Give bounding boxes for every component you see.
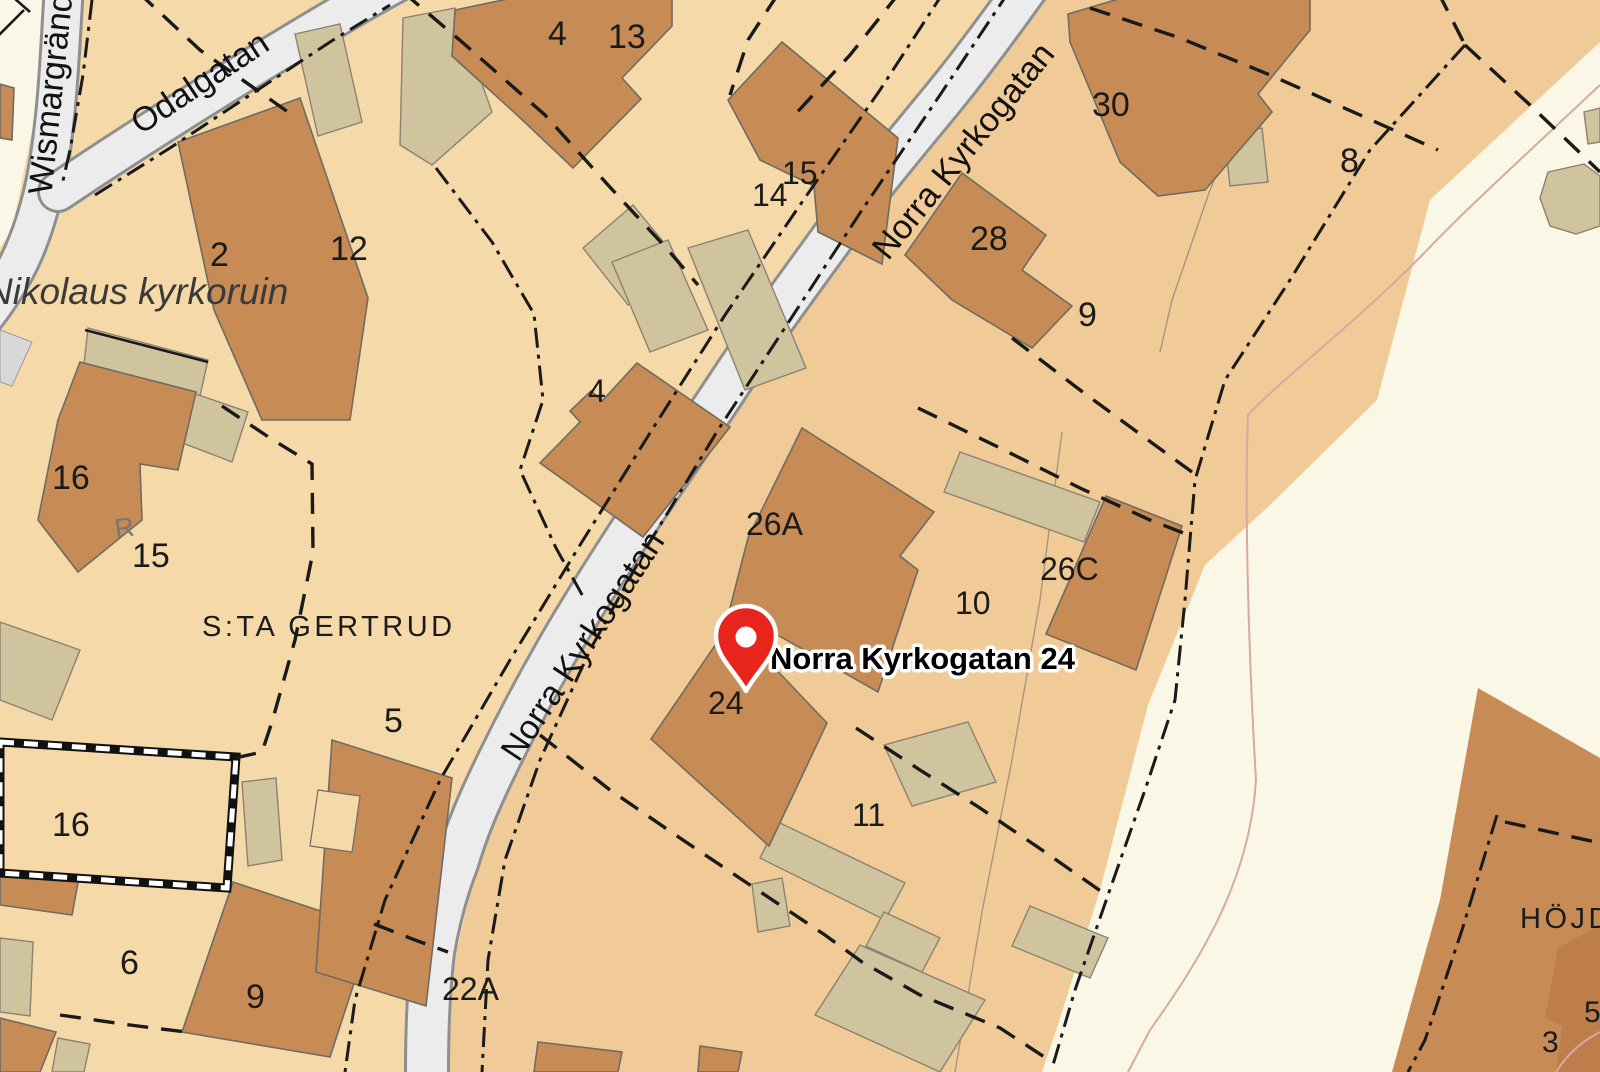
number-label: 6 [120,944,139,982]
number-label: 4 [588,373,606,409]
tree-canopy [1540,164,1600,234]
number-label: 8 [1340,142,1359,180]
number-label: 28 [970,220,1008,258]
number-label: 26A [746,506,804,542]
number-label: 24 [708,685,744,721]
outbuilding [52,1038,90,1072]
number-label: 9 [1078,296,1097,334]
number-label: 30 [1092,86,1130,124]
number-label: 12 [330,230,368,268]
number-label: 5 [1584,996,1600,1029]
number-label: 15 [132,537,170,575]
number-label: 11 [852,797,885,833]
map-canvas[interactable]: Wismargränd Odalgatan Norra Kyrkogatan N… [0,0,1600,1072]
number-label: 10 [955,585,991,621]
number-label: 9 [246,978,265,1016]
outbuilding [0,938,33,1016]
marker-label: Norra Kyrkogatan 24 [770,641,1076,676]
number-label: 13 [608,18,646,56]
building [0,84,14,140]
number-label: 4 [548,15,567,53]
number-label: 3 [1542,1026,1559,1059]
place-label-kyrkoruin: Nikolaus kyrkoruin [0,271,288,312]
building-notch [310,790,360,852]
number-label: 16 [52,459,90,497]
outbuilding [242,778,282,866]
map-pin-hole [736,627,757,648]
number-label: 22A [442,971,500,1007]
place-label-hojden: HÖJDE [1520,903,1600,935]
place-label-sta-gertrud: S:TA GERTRUD [202,611,456,643]
number-label: 5 [384,702,403,740]
map-root: Wismargränd Odalgatan Norra Kyrkogatan N… [0,0,1600,1072]
ruin-wall [0,742,236,888]
number-label: 15 [782,155,818,191]
number-label: 16 [52,806,90,844]
number-label: 26C [1040,551,1099,587]
number-label: 2 [210,236,229,274]
